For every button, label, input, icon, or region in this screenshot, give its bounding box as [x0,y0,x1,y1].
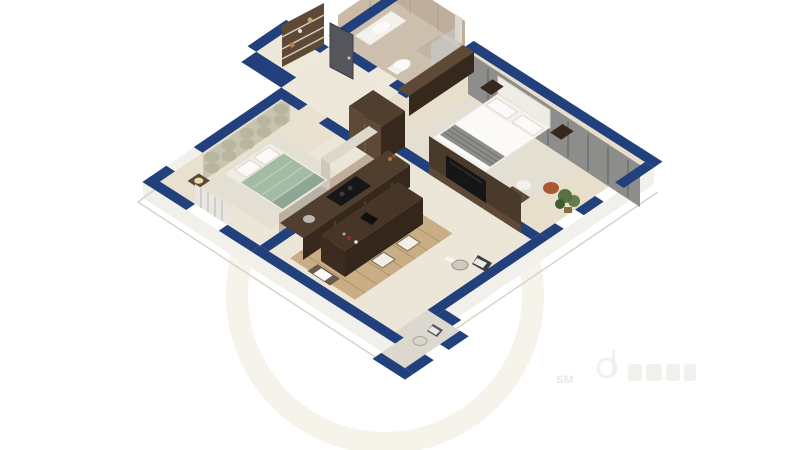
sm-watermark-text: SM [556,374,574,386]
rust-pouf [543,182,559,194]
door-handle [348,57,351,60]
floor-plan-render: SM [0,0,800,450]
counter-decor [388,157,392,161]
shelf-vase [308,18,313,23]
floor-plan-svg: SM [0,0,800,450]
side-table [452,260,468,270]
plant-pot [564,207,572,213]
table-cups [347,236,351,240]
balcony-table [413,337,427,346]
kitchen-sink [303,215,315,223]
